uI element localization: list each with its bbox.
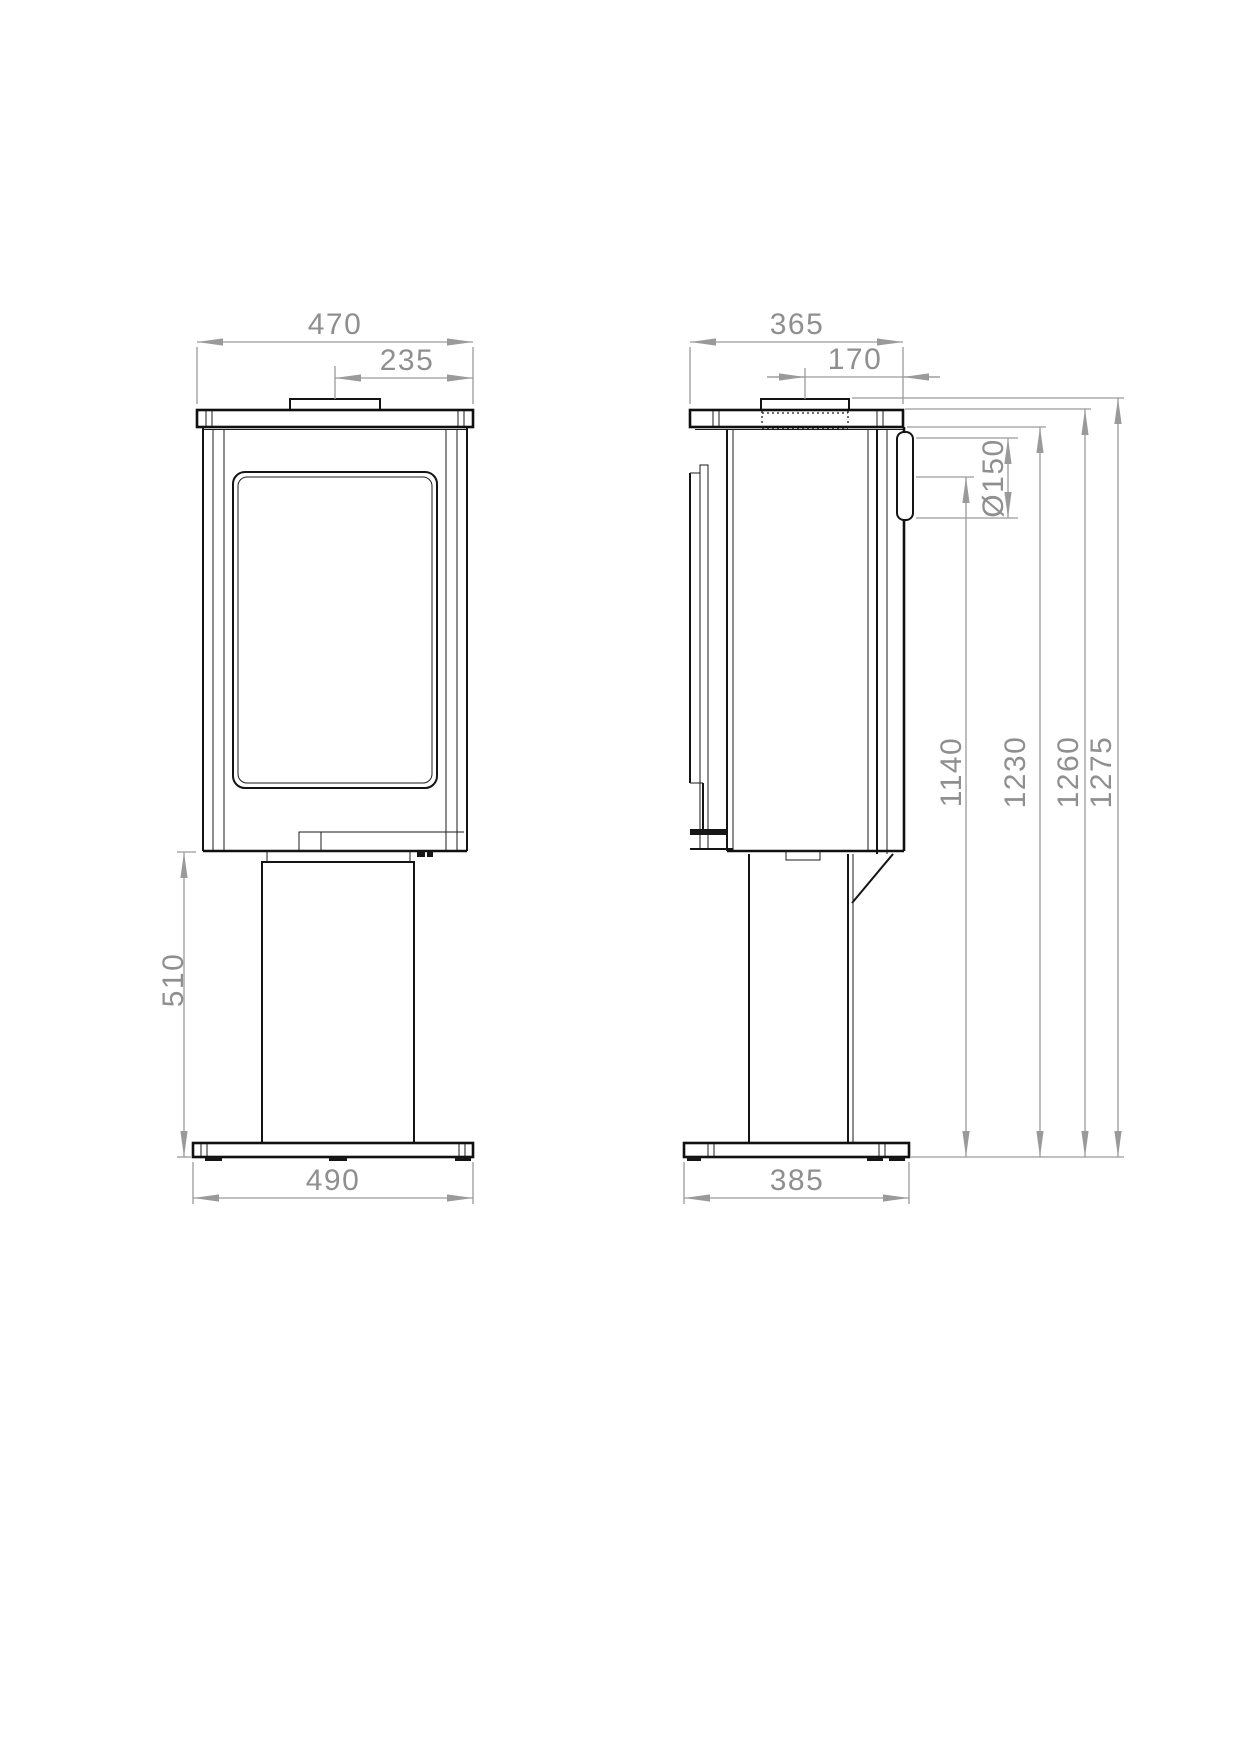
dim-label-365: 365	[770, 308, 825, 341]
flue-collar-front	[290, 399, 380, 410]
front-view	[193, 399, 473, 1161]
top-plate-front	[197, 410, 473, 427]
dim-label-470: 470	[308, 308, 363, 341]
flue-collar-side	[761, 399, 849, 410]
dim-label-1260: 1260	[1052, 736, 1085, 809]
underside-bracket	[786, 851, 820, 860]
dim-label-490: 490	[306, 1164, 361, 1197]
side-view	[684, 399, 913, 1161]
dim-label-385: 385	[770, 1164, 825, 1197]
dim-label-1230: 1230	[999, 736, 1032, 809]
rear-support-diagonal	[852, 854, 893, 903]
base-plate-front	[193, 1143, 473, 1161]
glass-window	[233, 472, 437, 788]
base-plate-side	[684, 1143, 909, 1161]
top-plate-side	[690, 410, 903, 427]
pedestal-column-front	[262, 851, 414, 1143]
page: 470 235 510 490	[0, 0, 1241, 1754]
front-view-dimensions: 470 235 510 490	[157, 308, 473, 1204]
dim-label-235: 235	[380, 344, 435, 377]
pedestal-column-side	[749, 854, 853, 1143]
rear-flue-outlet	[897, 432, 913, 520]
dim-label-170: 170	[828, 343, 883, 376]
technical-drawing: 470 235 510 490	[0, 0, 1241, 1754]
dim-label-flue-diameter: Ø150	[977, 438, 1010, 517]
door-bottom-lip	[299, 832, 464, 857]
dim-label-510: 510	[157, 953, 190, 1008]
stove-body-side	[727, 427, 904, 903]
dim-label-1275: 1275	[1085, 736, 1118, 809]
dim-label-1140: 1140	[935, 737, 968, 808]
